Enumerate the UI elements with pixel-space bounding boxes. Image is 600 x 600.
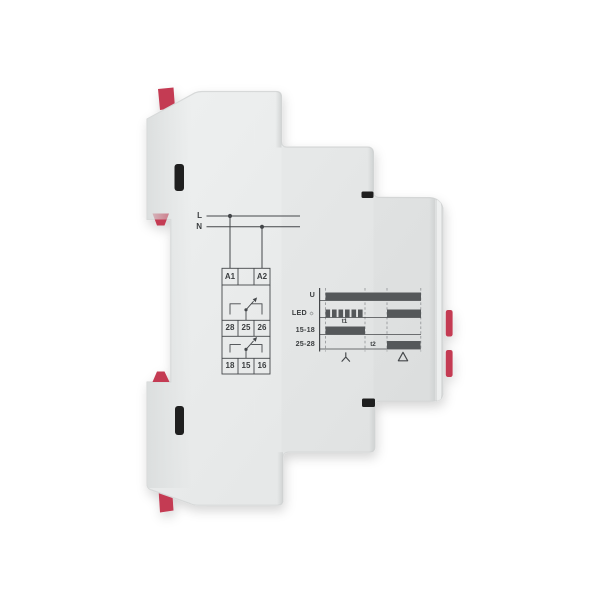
led-text: LED (292, 308, 307, 317)
timing-bar (387, 310, 421, 318)
terminal-a2: A2 (254, 273, 270, 281)
live-label: L (186, 212, 202, 220)
timing-blink-segment (332, 310, 337, 318)
t2-annotation: t2 (366, 342, 381, 348)
terminal-18: 18 (222, 362, 238, 370)
timing-blink-segment (339, 310, 344, 318)
terminal-15: 15 (238, 362, 254, 370)
timing-row-label-15-18: 15-18 (270, 326, 315, 333)
timing-blink-segment (352, 310, 357, 318)
junction-dot-live (228, 214, 232, 218)
terminal-16: 16 (254, 362, 270, 370)
timing-bar (387, 341, 421, 349)
led-blink-icon: ☼ (308, 310, 315, 317)
neutral-label: N (186, 223, 202, 231)
device-graphic (0, 0, 600, 600)
terminal-26: 26 (254, 324, 270, 332)
timing-blink-segment (326, 310, 331, 318)
terminal-lever-top (446, 310, 453, 337)
junction-dot-neutral (260, 225, 264, 229)
timing-bar (326, 293, 422, 301)
terminal-25: 25 (238, 324, 254, 332)
terminal-28: 28 (222, 324, 238, 332)
timing-blink-segment (345, 310, 350, 318)
vent-slot-right-bottom (362, 399, 375, 408)
t1-annotation: t1 (337, 319, 353, 325)
timing-row-label-u: U (270, 291, 315, 298)
terminal-lever-bottom (446, 350, 453, 377)
timing-row-label-25-28: 25-28 (270, 340, 315, 347)
terminal-a1: A1 (222, 273, 238, 281)
vent-slot-left-bottom (175, 406, 184, 435)
relay-product-image: L N A1 A2 28 25 26 18 15 16 U LED☼ 15-18… (0, 0, 600, 600)
timing-blink-segment (358, 310, 363, 318)
timing-bar (326, 327, 366, 335)
timing-row-label-led: LED☼ (270, 309, 315, 317)
din-clip-lower (153, 372, 170, 383)
vent-slot-left-top (175, 164, 185, 191)
vent-slot-right-top (362, 192, 374, 199)
